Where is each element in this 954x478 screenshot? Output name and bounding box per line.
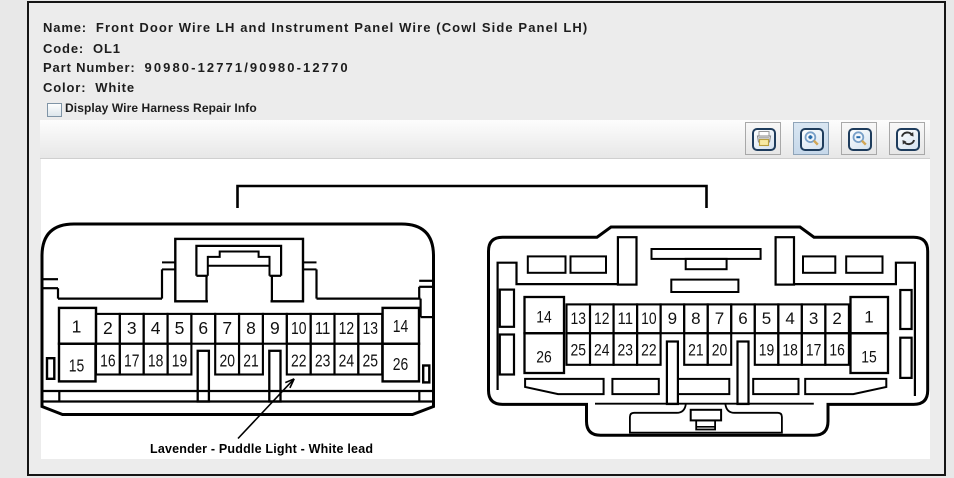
- svg-text:17: 17: [124, 351, 140, 371]
- svg-text:17: 17: [806, 341, 822, 360]
- svg-text:19: 19: [759, 341, 775, 360]
- svg-text:12: 12: [339, 318, 355, 338]
- svg-text:26: 26: [536, 348, 552, 367]
- svg-text:19: 19: [172, 351, 188, 371]
- svg-text:21: 21: [243, 351, 259, 371]
- svg-text:6: 6: [198, 318, 208, 338]
- svg-text:21: 21: [688, 341, 704, 360]
- svg-text:15: 15: [861, 348, 877, 367]
- svg-text:24: 24: [594, 341, 610, 360]
- svg-text:18: 18: [782, 341, 798, 360]
- svg-text:26: 26: [393, 354, 409, 374]
- svg-text:18: 18: [148, 351, 164, 371]
- svg-text:16: 16: [100, 351, 116, 371]
- svg-text:4: 4: [785, 309, 794, 328]
- svg-text:22: 22: [291, 351, 307, 371]
- svg-text:8: 8: [246, 318, 256, 338]
- svg-text:10: 10: [641, 309, 657, 328]
- svg-text:6: 6: [738, 309, 747, 328]
- svg-text:16: 16: [829, 341, 845, 360]
- svg-text:5: 5: [762, 309, 771, 328]
- svg-text:11: 11: [315, 318, 331, 338]
- svg-text:13: 13: [363, 318, 379, 338]
- svg-text:8: 8: [691, 309, 700, 328]
- svg-text:3: 3: [809, 309, 818, 328]
- svg-text:15: 15: [69, 356, 85, 376]
- svg-text:25: 25: [363, 351, 379, 371]
- svg-text:25: 25: [571, 341, 587, 360]
- svg-text:9: 9: [270, 318, 280, 338]
- svg-text:12: 12: [594, 309, 610, 328]
- svg-text:13: 13: [571, 309, 587, 328]
- svg-text:4: 4: [151, 318, 161, 338]
- svg-text:23: 23: [315, 351, 331, 371]
- svg-text:9: 9: [668, 309, 677, 328]
- svg-text:7: 7: [715, 309, 724, 328]
- svg-text:7: 7: [222, 318, 232, 338]
- svg-text:2: 2: [103, 318, 113, 338]
- svg-text:20: 20: [712, 341, 728, 360]
- svg-text:14: 14: [393, 316, 409, 336]
- svg-text:14: 14: [536, 308, 552, 327]
- svg-text:2: 2: [832, 309, 841, 328]
- svg-text:20: 20: [219, 351, 235, 371]
- svg-text:5: 5: [175, 318, 185, 338]
- svg-text:11: 11: [618, 309, 634, 328]
- svg-text:24: 24: [339, 351, 355, 371]
- svg-text:3: 3: [127, 318, 137, 338]
- svg-text:1: 1: [864, 308, 873, 327]
- svg-text:22: 22: [641, 341, 657, 360]
- svg-text:1: 1: [72, 317, 82, 337]
- svg-text:23: 23: [618, 341, 634, 360]
- svg-text:10: 10: [291, 318, 307, 338]
